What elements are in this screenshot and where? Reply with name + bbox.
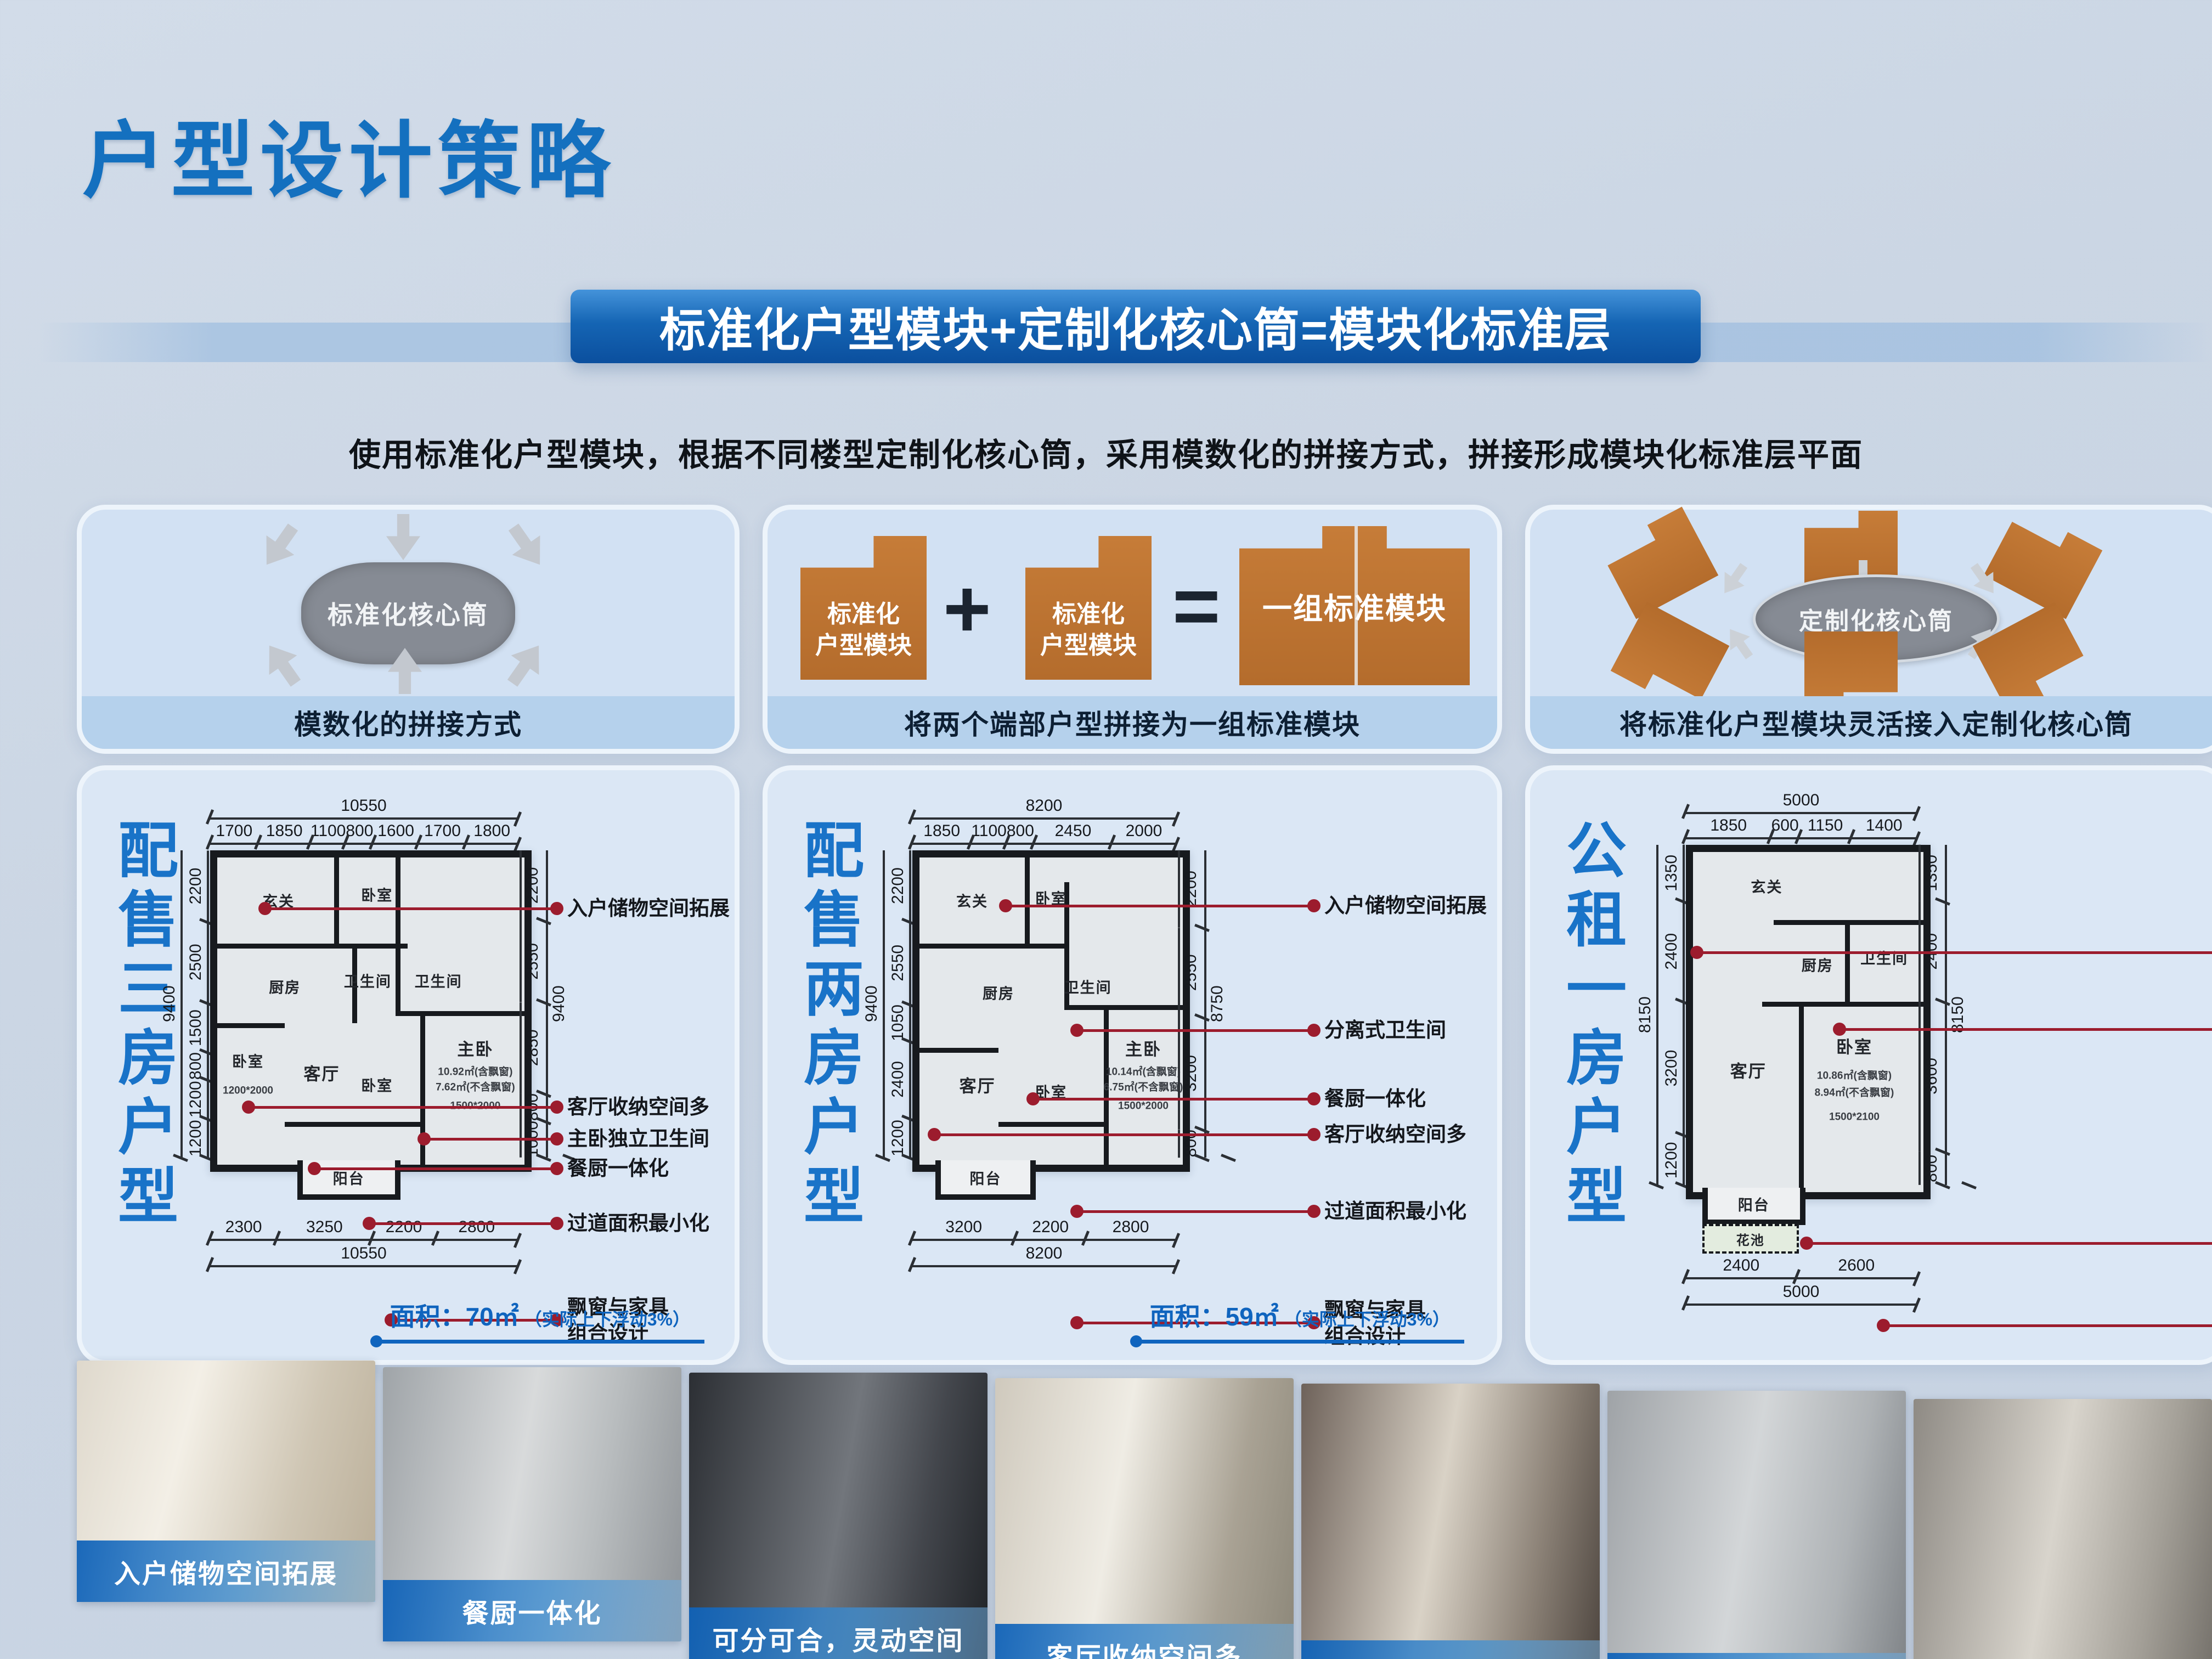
dim-value: 1850 bbox=[1686, 816, 1771, 839]
flower-bed: 花池 bbox=[1702, 1224, 1799, 1254]
dim-value: 2400 bbox=[1661, 901, 1685, 1002]
room-note: 8.94㎡(不含飘窗) bbox=[1815, 1086, 1894, 1101]
page-title: 户型设计策略 bbox=[82, 93, 616, 214]
dim-value: 3200 bbox=[1661, 1001, 1685, 1135]
arrow-up-icon bbox=[499, 636, 553, 693]
room-label: 卫生间 bbox=[1860, 947, 1908, 968]
annotation-line bbox=[1695, 951, 2212, 954]
dim-row-top: 185060011501400 bbox=[1686, 816, 1916, 839]
standard-module-shape bbox=[1600, 506, 1719, 619]
photo-kitchen-dining: 餐厨一体化 bbox=[383, 1367, 681, 1641]
dim-value: 8150 bbox=[1634, 845, 1658, 1185]
dim-value: 1200 bbox=[1661, 1135, 1685, 1185]
room-label: 客厅 bbox=[303, 1060, 340, 1085]
dim-value: 1400 bbox=[1852, 816, 1916, 839]
annotation-label: 餐厨一体化 bbox=[1324, 1086, 1426, 1112]
panel-three-bedroom: 配售三房户型 10550 170018501100800160017001800… bbox=[77, 765, 740, 1365]
panel-two-bedroom: 配售两房户型 8200 1850110080024502000 9400 220… bbox=[763, 765, 1502, 1365]
dim-value: 9400 bbox=[861, 850, 885, 1158]
dim-value: 3200 bbox=[1178, 1017, 1202, 1130]
room-label: 卫生间 bbox=[344, 970, 392, 991]
standard-core-shape: 标准化核心筒 bbox=[301, 562, 515, 664]
photo-corridor: 过道面积最小化 bbox=[1301, 1384, 1600, 1659]
room-label: 卧室 bbox=[232, 1049, 264, 1071]
annotation-label: 客厅收纳空间多 bbox=[567, 1094, 709, 1120]
annotation-label: 分离式卫生间 bbox=[1324, 1017, 1446, 1043]
dim-value: 1700 bbox=[210, 822, 258, 845]
dim-value: 800 bbox=[1007, 822, 1034, 845]
dim-value: 2800 bbox=[1086, 1218, 1176, 1241]
annotation-label: 入户储物空间拓展 bbox=[567, 895, 730, 922]
room-note: 1200*2000 bbox=[223, 1084, 273, 1098]
floor-plan: 8200 1850110080024502000 9400 2200255010… bbox=[861, 798, 1228, 1335]
dim-value: 2850 bbox=[520, 1002, 544, 1093]
dim-value: 2200 bbox=[372, 1218, 436, 1241]
dim-value: 2550 bbox=[520, 921, 544, 1002]
banner-text: 标准化户型模块+定制化核心筒=模块化标准层 bbox=[659, 294, 1612, 360]
plan-drawing: 玄关 厨房 卫生间 客厅 卧室 10.86㎡(含飘窗) 8.94㎡(不含飘窗) … bbox=[1686, 845, 1931, 1199]
dim-value: 2000 bbox=[1112, 822, 1176, 845]
room-note: 6.75㎡(不含飘窗) bbox=[1104, 1081, 1183, 1096]
dim-value: 1150 bbox=[1799, 816, 1852, 839]
balcony: 阳台 bbox=[1702, 1188, 1805, 1225]
plan-drawing: 玄关 卧室 厨房 卫生间 卫生间 卧室 1200*2000 客厅 卧室 主卧 1… bbox=[210, 850, 532, 1172]
photo-living-storage: 客厅收纳空间多 bbox=[995, 1378, 1294, 1659]
annotation-line bbox=[367, 1222, 559, 1225]
card-caption: 将标准化户型模块灵活接入定制化核心筒 bbox=[1530, 696, 2212, 749]
card-caption: 模数化的拼接方式 bbox=[82, 696, 735, 749]
arrow-down-icon bbox=[253, 517, 307, 574]
photo-strip: 入户储物空间拓展 餐厨一体化 可分可合，灵动空间 客厅收纳空间多 过道面积最小化… bbox=[77, 1361, 2212, 1659]
dim-value: 2200 bbox=[1015, 1218, 1086, 1241]
room-note: 1500*2100 bbox=[1829, 1110, 1880, 1125]
area-tolerance: （实际上下浮动3%） bbox=[524, 1306, 690, 1331]
card-caption: 将两个端部户型拼接为一组标准模块 bbox=[768, 696, 1497, 749]
dim-total-bottom: 10550 bbox=[210, 1244, 517, 1267]
dim-value: 2200 bbox=[887, 850, 911, 922]
annotation-line bbox=[1031, 1098, 1316, 1101]
photo-caption: 客厅收纳空间多 bbox=[995, 1624, 1294, 1659]
dim-value: 1200 bbox=[887, 1119, 911, 1158]
photo-bathroom: 分离式卫生间 bbox=[1607, 1391, 1906, 1659]
room-label: 卧室 bbox=[1836, 1034, 1872, 1058]
dim-total-top: 5000 bbox=[1686, 792, 1916, 814]
dim-value: 8150 bbox=[1945, 845, 1969, 1185]
dim-col-right: 2200255028508001000 bbox=[520, 850, 544, 1158]
photo-caption: 餐厨一体化 bbox=[383, 1580, 681, 1641]
room-note: 10.14㎡(含飘窗) bbox=[1106, 1065, 1181, 1080]
annotation-line bbox=[1075, 1029, 1316, 1032]
annotation-label: 过道面积最小化 bbox=[1324, 1198, 1466, 1224]
module-label: 标准化 户型模块 bbox=[1040, 599, 1137, 680]
dim-value: 1100 bbox=[971, 822, 1007, 845]
dim-value: 1100 bbox=[311, 822, 346, 845]
panel-title: 公租一房户型 bbox=[1547, 819, 1634, 1233]
dim-total-left: 8150 bbox=[1634, 845, 1658, 1185]
dim-value: 800 bbox=[185, 1052, 209, 1080]
dim-col-left: 1350240032001200 bbox=[1661, 845, 1685, 1185]
room-label: 玄关 bbox=[1751, 876, 1782, 897]
dim-row-bottom: 24002600 bbox=[1686, 1256, 1916, 1279]
panel-one-bedroom: 公租一房户型 5000 185060011501400 8150 1350240… bbox=[1525, 765, 2212, 1365]
room-label: 卧室 bbox=[361, 1074, 393, 1096]
dim-value: 800 bbox=[1918, 1152, 1943, 1185]
photo-bedroom-closet bbox=[1914, 1399, 2212, 1659]
dim-value: 5000 bbox=[1686, 1283, 1916, 1306]
dim-value: 1350 bbox=[1661, 845, 1685, 901]
room-label: 卫生间 bbox=[415, 970, 462, 991]
dim-value: 2800 bbox=[436, 1218, 517, 1241]
dim-value: 1850 bbox=[912, 822, 971, 845]
annotation-line bbox=[1881, 1324, 2212, 1327]
dim-total-bottom: 8200 bbox=[912, 1244, 1176, 1267]
dim-col-right: 220025503200800 bbox=[1178, 850, 1202, 1158]
arrow-down-icon bbox=[1714, 558, 1754, 600]
dim-value: 5000 bbox=[1686, 792, 1916, 814]
dim-total-right: 8150 bbox=[1945, 845, 1969, 1185]
dim-col-left: 22002550105024001200 bbox=[887, 850, 911, 1158]
arrow-down-icon bbox=[500, 517, 554, 574]
photo-caption: 分离式卫生间 bbox=[1607, 1653, 1906, 1659]
dim-value: 3200 bbox=[912, 1218, 1015, 1241]
dim-value: 2200 bbox=[185, 850, 209, 922]
annotation-line bbox=[422, 1138, 559, 1141]
annotation-label: 餐厨一体化 bbox=[567, 1155, 669, 1182]
dim-value: 3600 bbox=[1918, 1001, 1943, 1152]
room-label: 阳台 bbox=[969, 1167, 1001, 1188]
dim-value: 600 bbox=[1771, 816, 1798, 839]
dim-total-top: 10550 bbox=[210, 798, 517, 820]
annotation-line bbox=[263, 907, 559, 910]
arrow-up-icon bbox=[1720, 622, 1759, 664]
dim-value: 1200 bbox=[185, 1080, 209, 1119]
module-label: 标准化 户型模块 bbox=[815, 599, 912, 680]
annotation-line bbox=[1804, 1242, 2212, 1245]
banner-subtitle: 使用标准化户型模块，根据不同楼型定制化核心筒，采用模数化的拼接方式，拼接形成模块… bbox=[0, 429, 2212, 475]
arrow-down-icon bbox=[386, 514, 420, 560]
dim-total-left: 9400 bbox=[159, 850, 183, 1158]
dim-value: 2500 bbox=[185, 922, 209, 1003]
dim-col-left: 22002500150080012001200 bbox=[185, 850, 209, 1158]
photo-caption: 过道面积最小化 bbox=[1301, 1640, 1600, 1659]
dim-value: 800 bbox=[346, 822, 373, 845]
room-note: 10.86㎡(含飘窗) bbox=[1817, 1069, 1892, 1084]
standard-module-shape: 标准化 户型模块 bbox=[800, 536, 927, 680]
dim-value: 8200 bbox=[912, 798, 1176, 820]
concept-card-flexible-core: 定制化核心筒 将标准化户型模块灵活接入定制化核心筒 bbox=[1525, 505, 2212, 754]
room-label: 厨房 bbox=[1802, 953, 1833, 975]
dim-value: 10550 bbox=[210, 798, 517, 820]
dim-value: 3250 bbox=[277, 1218, 372, 1241]
dim-value: 9400 bbox=[159, 850, 183, 1158]
module-group-label: 一组标准模块 bbox=[1262, 584, 1447, 628]
dim-value: 2200 bbox=[520, 850, 544, 921]
photo-caption: 入户储物空间拓展 bbox=[77, 1541, 375, 1602]
floor-plan: 5000 185060011501400 8150 13502400320012… bbox=[1634, 792, 1969, 1335]
dim-value: 2550 bbox=[1178, 928, 1202, 1017]
dim-value: 2200 bbox=[1178, 850, 1202, 928]
room-label: 厨房 bbox=[983, 982, 1014, 1003]
photo-flexible-space: 可分可合，灵动空间 bbox=[689, 1373, 988, 1659]
annotation-line bbox=[1003, 905, 1316, 907]
dim-value: 2600 bbox=[1797, 1256, 1916, 1279]
dim-value: 2400 bbox=[887, 1041, 911, 1119]
floor-plan: 10550 170018501100800160017001800 9400 2… bbox=[159, 798, 570, 1335]
dim-value: 2400 bbox=[1686, 1256, 1797, 1279]
area-note: 面积：70㎡ （实际上下浮动3%） bbox=[374, 1297, 704, 1344]
panel-title: 配售两房户型 bbox=[784, 819, 872, 1233]
dim-value: 1350 bbox=[1918, 845, 1943, 901]
dim-row-bottom: 320022002800 bbox=[912, 1218, 1176, 1241]
room-label: 玄关 bbox=[956, 890, 988, 911]
dim-row-top: 170018501100800160017001800 bbox=[210, 822, 517, 845]
area-tolerance: （实际上下浮动3%） bbox=[1284, 1306, 1450, 1331]
dim-value: 2550 bbox=[887, 922, 911, 1005]
area-note: 面积：59㎡ （实际上下浮动3%） bbox=[1133, 1297, 1464, 1344]
room-label: 卧室 bbox=[361, 884, 393, 905]
standard-module-shape: 标准化 户型模块 bbox=[1025, 536, 1152, 680]
balcony: 阳台 bbox=[935, 1160, 1036, 1200]
standard-module-shape bbox=[1984, 506, 2103, 619]
module-group-shape: 一组标准模块 bbox=[1239, 526, 1470, 685]
dim-value: 1850 bbox=[258, 822, 311, 845]
room-label: 卫生间 bbox=[1064, 976, 1112, 997]
room-label: 客厅 bbox=[960, 1073, 996, 1097]
dim-col-right: 135024003600800 bbox=[1918, 845, 1943, 1185]
annotation-line bbox=[1075, 1210, 1316, 1213]
dim-value: 2300 bbox=[210, 1218, 277, 1241]
area-value: 面积：59㎡ bbox=[1150, 1297, 1279, 1333]
room-label: 主卧 bbox=[1125, 1036, 1161, 1060]
room-note: 10.92㎡(含飘窗) bbox=[438, 1065, 512, 1080]
annotation-label: 入户储物空间拓展 bbox=[1324, 893, 1487, 919]
plan-drawing: 玄关 卧室 厨房 卫生间 客厅 卧室 主卧 10.14㎡(含飘窗) 6.75㎡(… bbox=[912, 850, 1190, 1172]
annotation-line bbox=[312, 1167, 559, 1170]
annotation-label: 客厅收纳空间多 bbox=[1324, 1121, 1466, 1148]
photo-entry-storage: 入户储物空间拓展 bbox=[77, 1361, 375, 1602]
area-value: 面积：70㎡ bbox=[390, 1297, 519, 1333]
room-label: 客厅 bbox=[1730, 1057, 1767, 1082]
room-label: 阳台 bbox=[1738, 1193, 1770, 1215]
room-label: 主卧 bbox=[457, 1036, 493, 1060]
dim-value: 1800 bbox=[466, 822, 517, 845]
room-label: 花池 bbox=[1736, 1229, 1765, 1249]
dim-value: 1700 bbox=[419, 822, 467, 845]
dim-value: 2450 bbox=[1034, 822, 1112, 845]
dim-value: 10550 bbox=[210, 1244, 517, 1267]
dim-row-top: 1850110080024502000 bbox=[912, 822, 1176, 845]
dim-total-top: 8200 bbox=[912, 798, 1176, 820]
dim-value: 8200 bbox=[912, 1244, 1176, 1267]
annotation-line bbox=[932, 1133, 1316, 1136]
equals-sign: = bbox=[1172, 565, 1221, 647]
photo-caption: 可分可合，灵动空间 bbox=[689, 1607, 988, 1659]
annotation-label: 过道面积最小化 bbox=[567, 1210, 709, 1237]
dim-value: 1500 bbox=[185, 1003, 209, 1052]
plus-sign: + bbox=[943, 567, 991, 650]
room-note: 1500*2000 bbox=[1118, 1099, 1169, 1114]
dim-value: 1050 bbox=[887, 1005, 911, 1041]
annotation-label: 主卧独立卫生间 bbox=[567, 1126, 709, 1152]
dim-value: 1600 bbox=[373, 822, 418, 845]
banner: 标准化户型模块+定制化核心筒=模块化标准层 bbox=[571, 290, 1701, 363]
dim-value: 8750 bbox=[1204, 850, 1228, 1158]
annotation-line bbox=[246, 1106, 559, 1109]
room-label: 厨房 bbox=[269, 976, 301, 997]
annotation-line bbox=[1837, 1028, 2212, 1031]
concept-card-module-pairing: 标准化 户型模块 + 标准化 户型模块 = 一组标准模块 将两个端部户型拼接为一… bbox=[763, 505, 1502, 754]
dim-total-right: 8750 bbox=[1204, 850, 1228, 1158]
room-note: 7.62㎡(不含飘窗) bbox=[436, 1081, 515, 1096]
dim-value: 1200 bbox=[185, 1119, 209, 1158]
dim-total-left: 9400 bbox=[861, 850, 885, 1158]
arrow-up-icon bbox=[256, 636, 310, 693]
concept-card-modular-joining: 标准化核心筒 模数化的拼接方式 bbox=[77, 505, 740, 754]
dim-total-bottom: 5000 bbox=[1686, 1283, 1916, 1306]
